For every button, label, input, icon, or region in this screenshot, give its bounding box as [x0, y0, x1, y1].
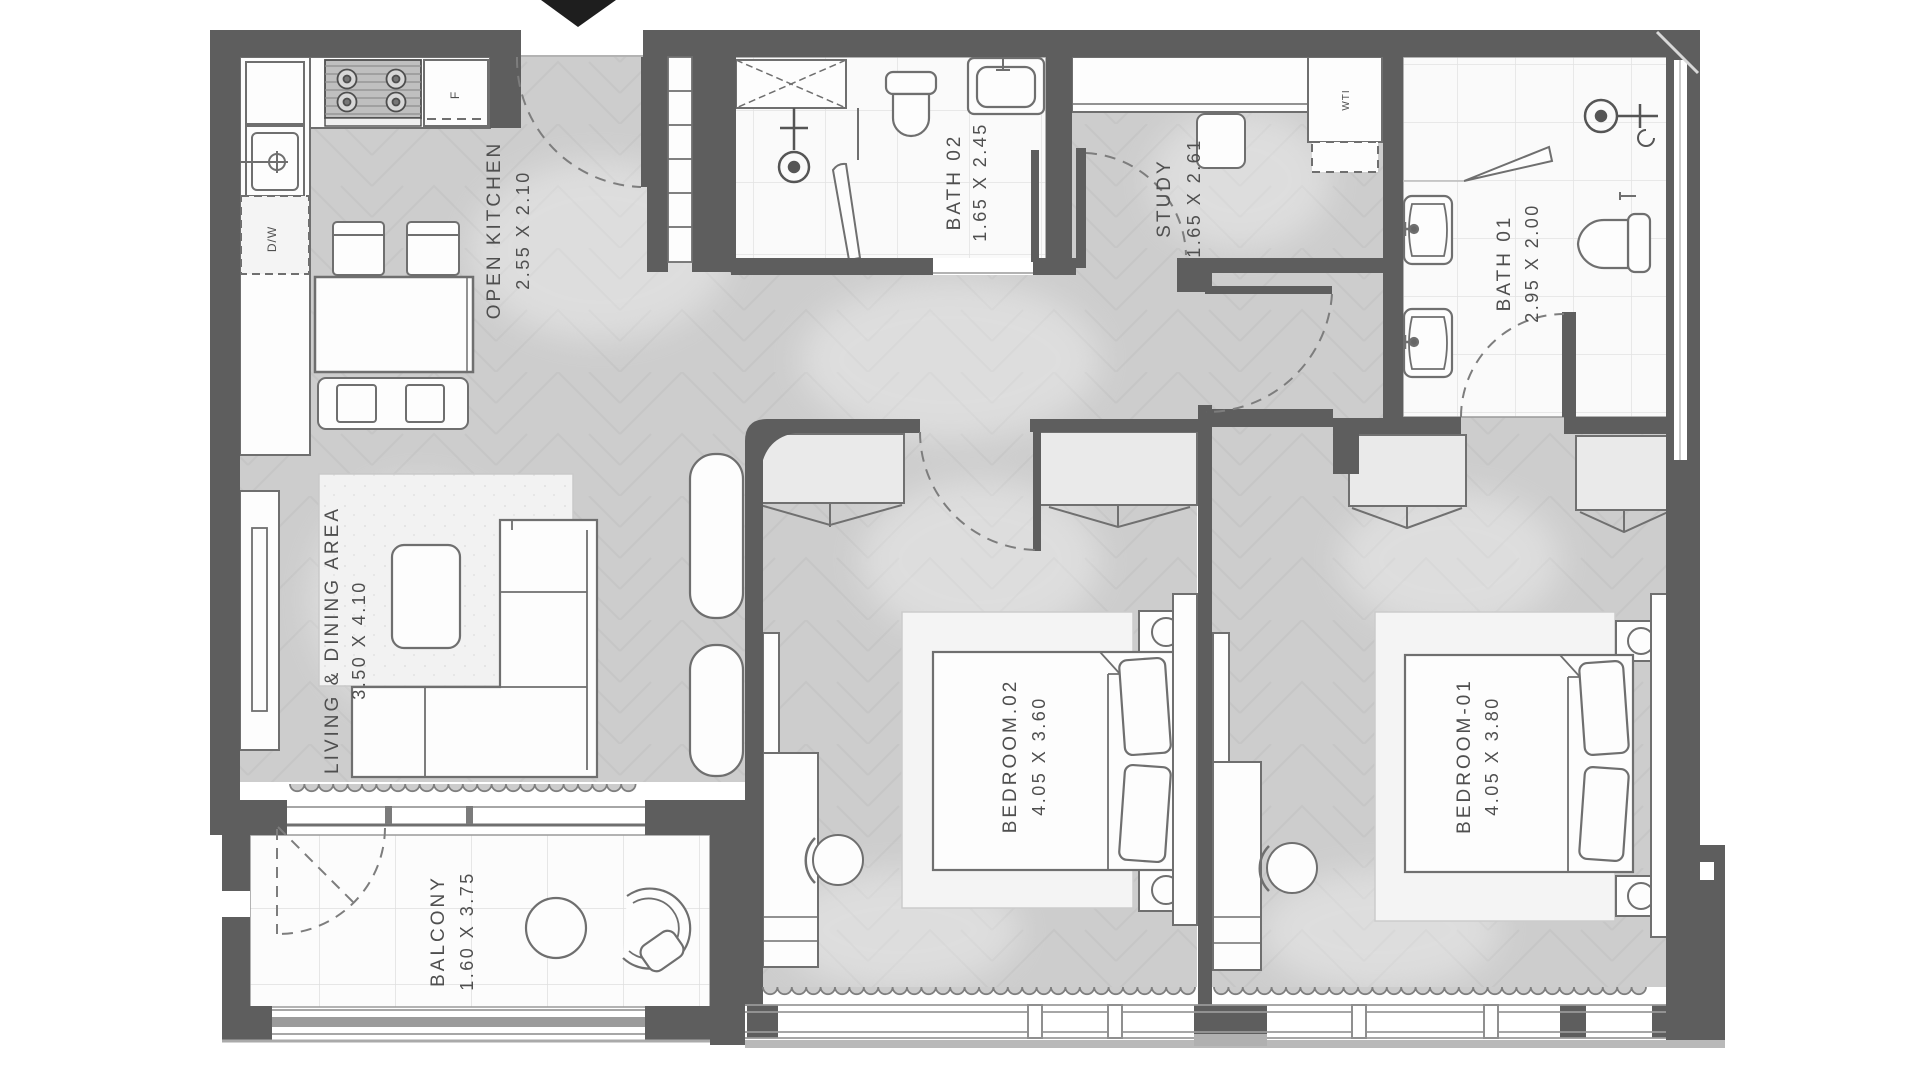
svg-text:BATH 02: BATH 02 [944, 134, 965, 231]
svg-text:STUDY: STUDY [1154, 158, 1175, 237]
svg-text:1.65 X 2.45: 1.65 X 2.45 [970, 122, 990, 242]
svg-text:BEDROOM-01: BEDROOM-01 [1454, 678, 1475, 834]
svg-text:BALCONY: BALCONY [428, 875, 449, 987]
svg-text:2.55 X 2.10: 2.55 X 2.10 [513, 170, 533, 290]
svg-text:BATH 01: BATH 01 [1494, 215, 1515, 312]
svg-text:WTI: WTI [1341, 89, 1352, 110]
svg-text:LIVING & DINING AREA: LIVING & DINING AREA [322, 506, 343, 774]
svg-text:D/W: D/W [265, 226, 279, 252]
svg-text:1.60 X 3.75: 1.60 X 3.75 [457, 871, 477, 991]
svg-text:BEDROOM.02: BEDROOM.02 [1000, 679, 1021, 834]
svg-text:4.05 X 3.60: 4.05 X 3.60 [1029, 696, 1049, 816]
svg-text:4.05 X 3.80: 4.05 X 3.80 [1482, 696, 1502, 816]
svg-text:1.65 X 2.61: 1.65 X 2.61 [1184, 138, 1204, 258]
svg-text:3.50 X 4.10: 3.50 X 4.10 [349, 580, 369, 700]
svg-text:OPEN KITCHEN: OPEN KITCHEN [484, 141, 505, 320]
svg-text:F: F [448, 91, 462, 99]
svg-text:2.95 X 2.00: 2.95 X 2.00 [1522, 203, 1542, 323]
